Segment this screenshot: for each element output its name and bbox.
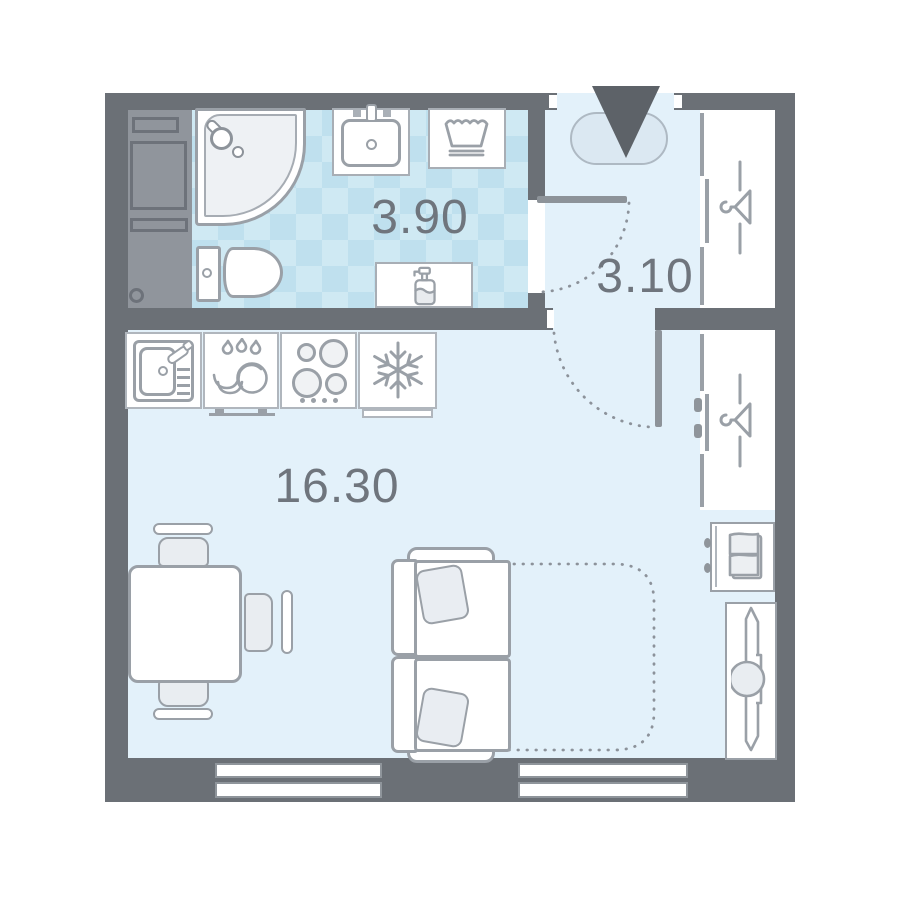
wardrobe-sliding-door-line: [700, 454, 704, 507]
chair-right-seat: [244, 593, 273, 652]
hob-knob-dot: [300, 398, 305, 403]
washbasin-tap-right-square: [383, 109, 391, 117]
drainer-line: [177, 368, 190, 371]
washbasin-drain-icon: [366, 139, 377, 150]
drainer-line: [177, 376, 190, 379]
hanger-icon: [718, 160, 762, 255]
sofa-pillow: [415, 686, 471, 748]
drainer-line: [177, 392, 190, 395]
shoe-cabinet-door-line: [715, 526, 717, 587]
shoe-cabinet-knob: [704, 538, 711, 548]
hob-burner-large-1: [319, 339, 348, 368]
laundry-basket-unit: [428, 108, 506, 169]
chair-right-back: [281, 590, 293, 654]
soap-dispenser-icon: [411, 265, 439, 307]
hob-knob-dot: [311, 398, 316, 403]
dining-table: [128, 565, 242, 683]
soap-shelf: [375, 262, 473, 308]
hob-burner-small-2: [325, 373, 347, 395]
shoe-cabinet: [710, 522, 775, 592]
hob-burner-small-1: [297, 343, 316, 362]
sofa-pillow: [415, 563, 471, 625]
drainer-line: [177, 384, 190, 387]
wardrobe-handle-tab: [694, 398, 702, 412]
ironing-board-unit: [725, 602, 777, 760]
chair-top-back: [153, 523, 213, 535]
chair-bottom-seat: [158, 679, 209, 707]
chair-top-seat: [158, 537, 209, 567]
shoe-cabinet-icon: [728, 532, 764, 582]
kitchen-sink-drain-icon: [158, 366, 168, 376]
room-door-swing-arc: [554, 333, 650, 427]
fridge-unit: [358, 332, 437, 409]
dishwasher-unit: [203, 332, 279, 409]
shower-mixer-icon: [210, 127, 233, 150]
snowflake-icon: [367, 339, 429, 401]
hob-unit: [280, 332, 357, 409]
washbasin-faucet-icon: [366, 104, 377, 122]
wardrobe-sliding-door-line: [700, 113, 704, 176]
chair-bottom-back: [153, 708, 213, 720]
wardrobe-sliding-door-line: [705, 394, 709, 451]
ironing-board-icon: [731, 605, 771, 755]
fold-out-bed-outline: [505, 564, 654, 750]
hanger-icon: [718, 373, 762, 468]
floor-plan: 3.90 3.10 16.30: [0, 0, 900, 910]
hob-burner-large-2: [292, 368, 322, 398]
hob-knob-dot: [333, 398, 338, 403]
dishes-icon: [211, 338, 273, 402]
hallway-area-label: 3.10: [555, 251, 735, 303]
shower-drain-icon: [232, 146, 244, 158]
wardrobe-sliding-door-line: [700, 334, 704, 391]
living-area-label: 16.30: [247, 461, 427, 513]
hob-knob-dot: [322, 398, 327, 403]
wardrobe-handle-tab: [694, 424, 702, 438]
shoe-cabinet-knob: [704, 563, 711, 573]
toilet-button-icon: [202, 268, 212, 278]
toilet-bowl: [223, 247, 283, 298]
washbasin-tap-left-square: [353, 109, 361, 117]
wardrobe-sliding-door-line: [705, 179, 709, 243]
laundry-basket-icon: [441, 114, 493, 162]
bathroom-area-label: 3.90: [330, 192, 510, 244]
dishwasher-foot: [215, 409, 224, 414]
fridge-door-strip: [362, 409, 433, 418]
dishwasher-foot: [258, 409, 267, 414]
